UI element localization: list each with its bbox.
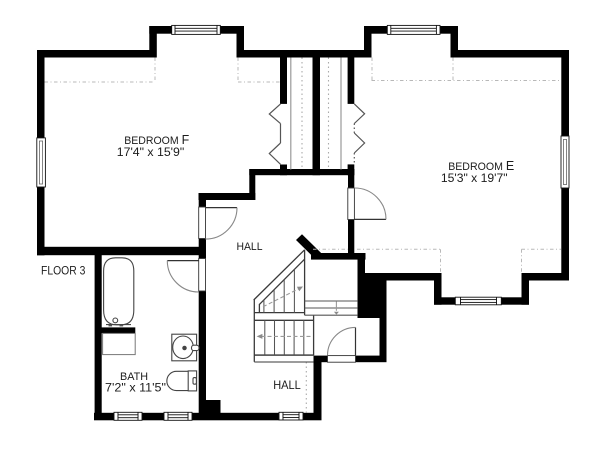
svg-text:FLOOR 3: FLOOR 3	[41, 263, 86, 277]
svg-text:7'2" x 11'5": 7'2" x 11'5"	[105, 381, 166, 395]
svg-text:15'3" x 19'7": 15'3" x 19'7"	[441, 171, 508, 185]
svg-text:HALL: HALL	[273, 379, 301, 392]
svg-text:HALL: HALL	[237, 241, 263, 253]
svg-text:17'4" x 15'9": 17'4" x 15'9"	[117, 145, 185, 159]
